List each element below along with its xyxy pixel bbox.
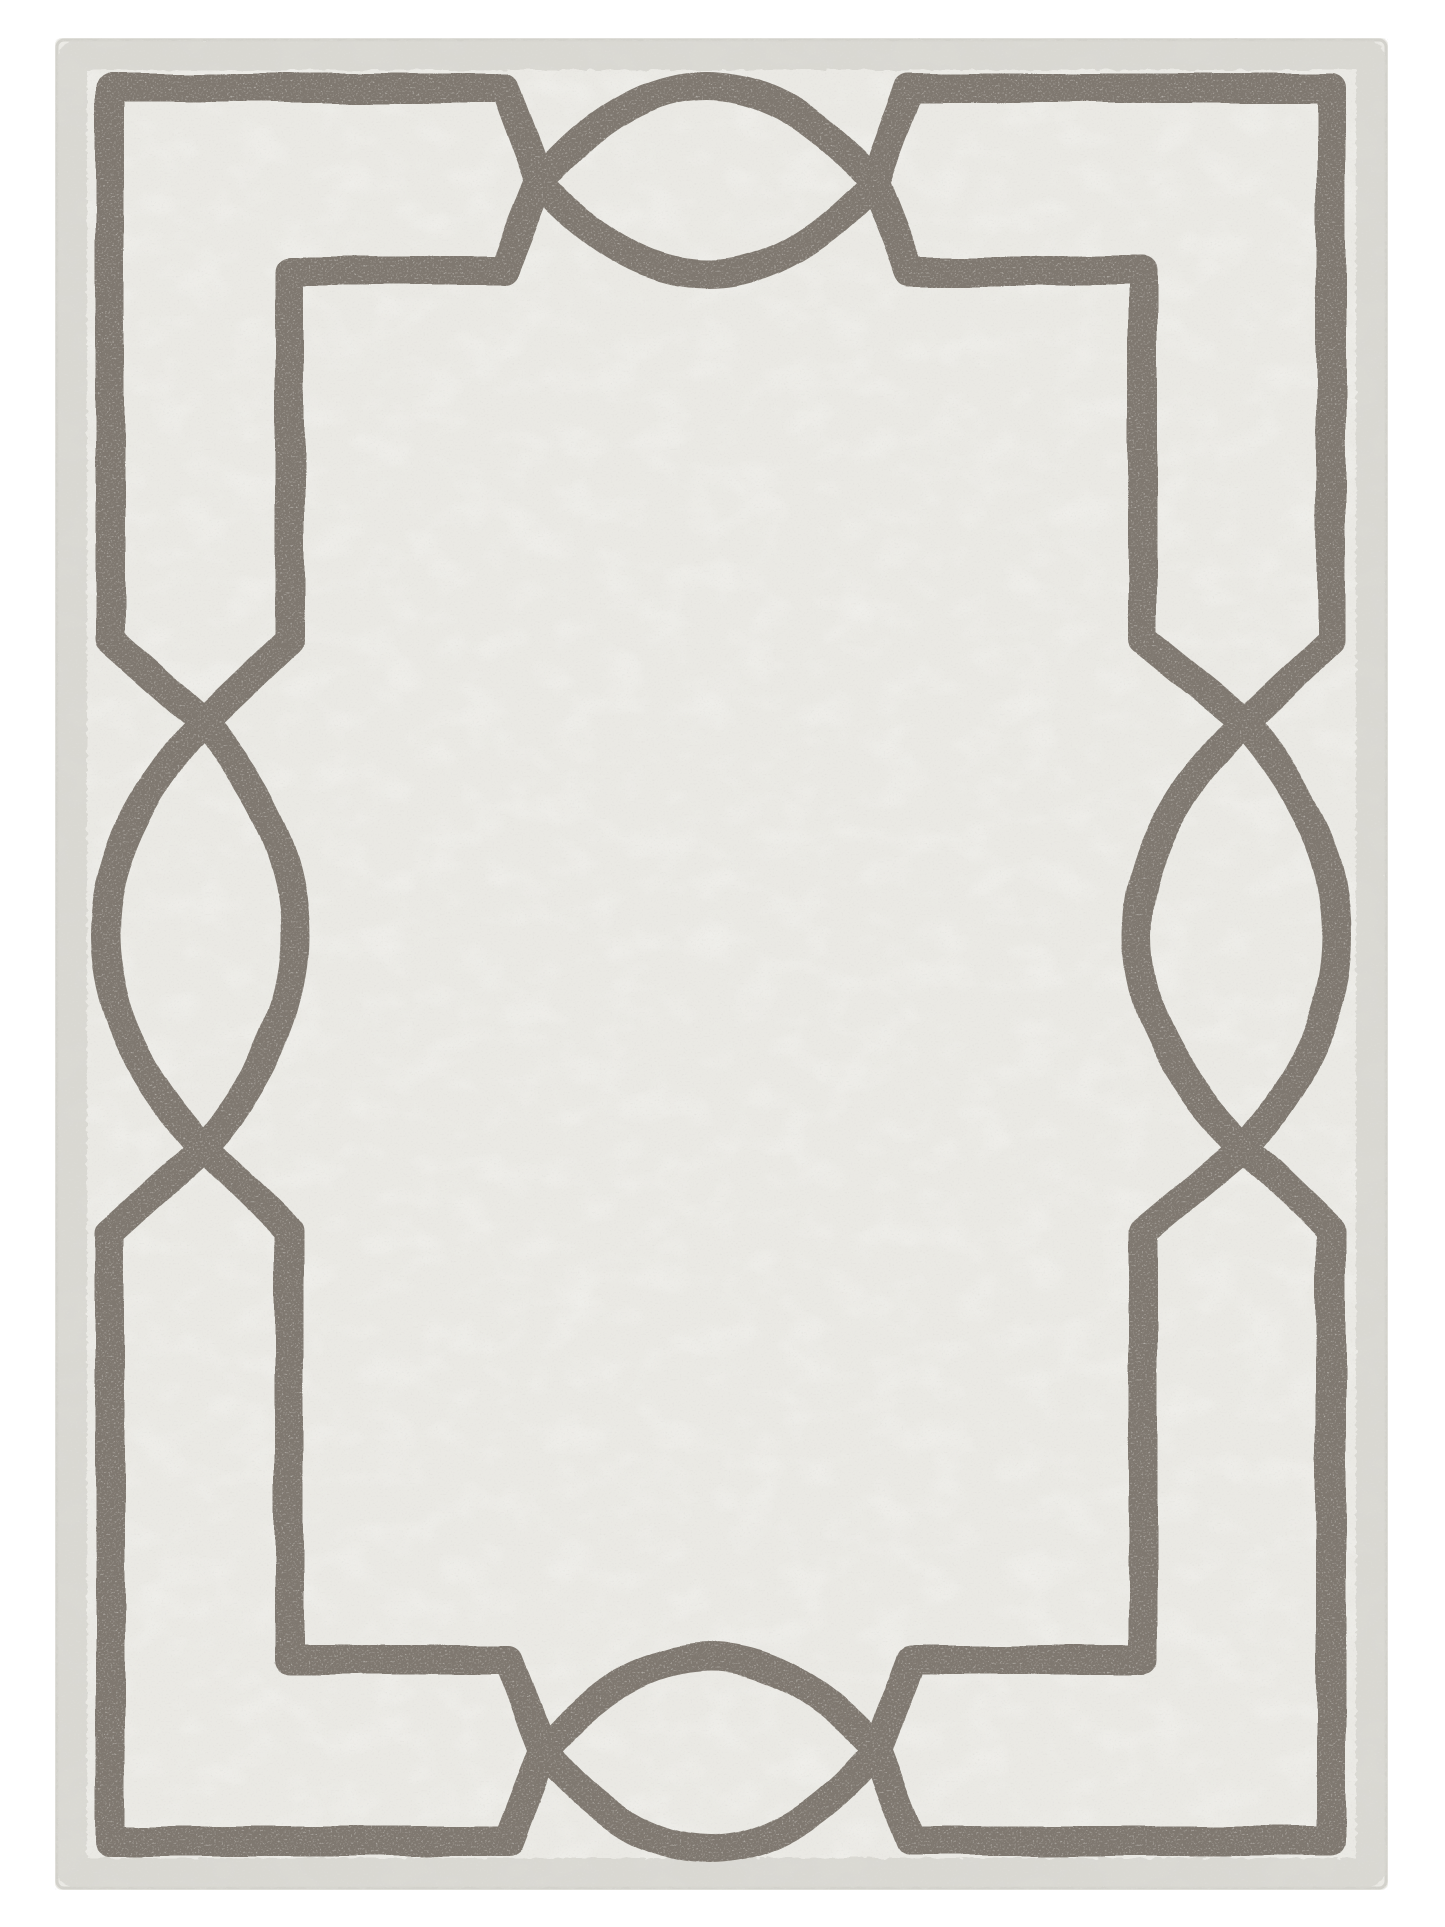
rug-photo: [55, 38, 1388, 1890]
rug-image: [55, 38, 1388, 1890]
photo-canvas: [0, 0, 1445, 1927]
rug-speckle-texture: [55, 38, 1388, 1890]
